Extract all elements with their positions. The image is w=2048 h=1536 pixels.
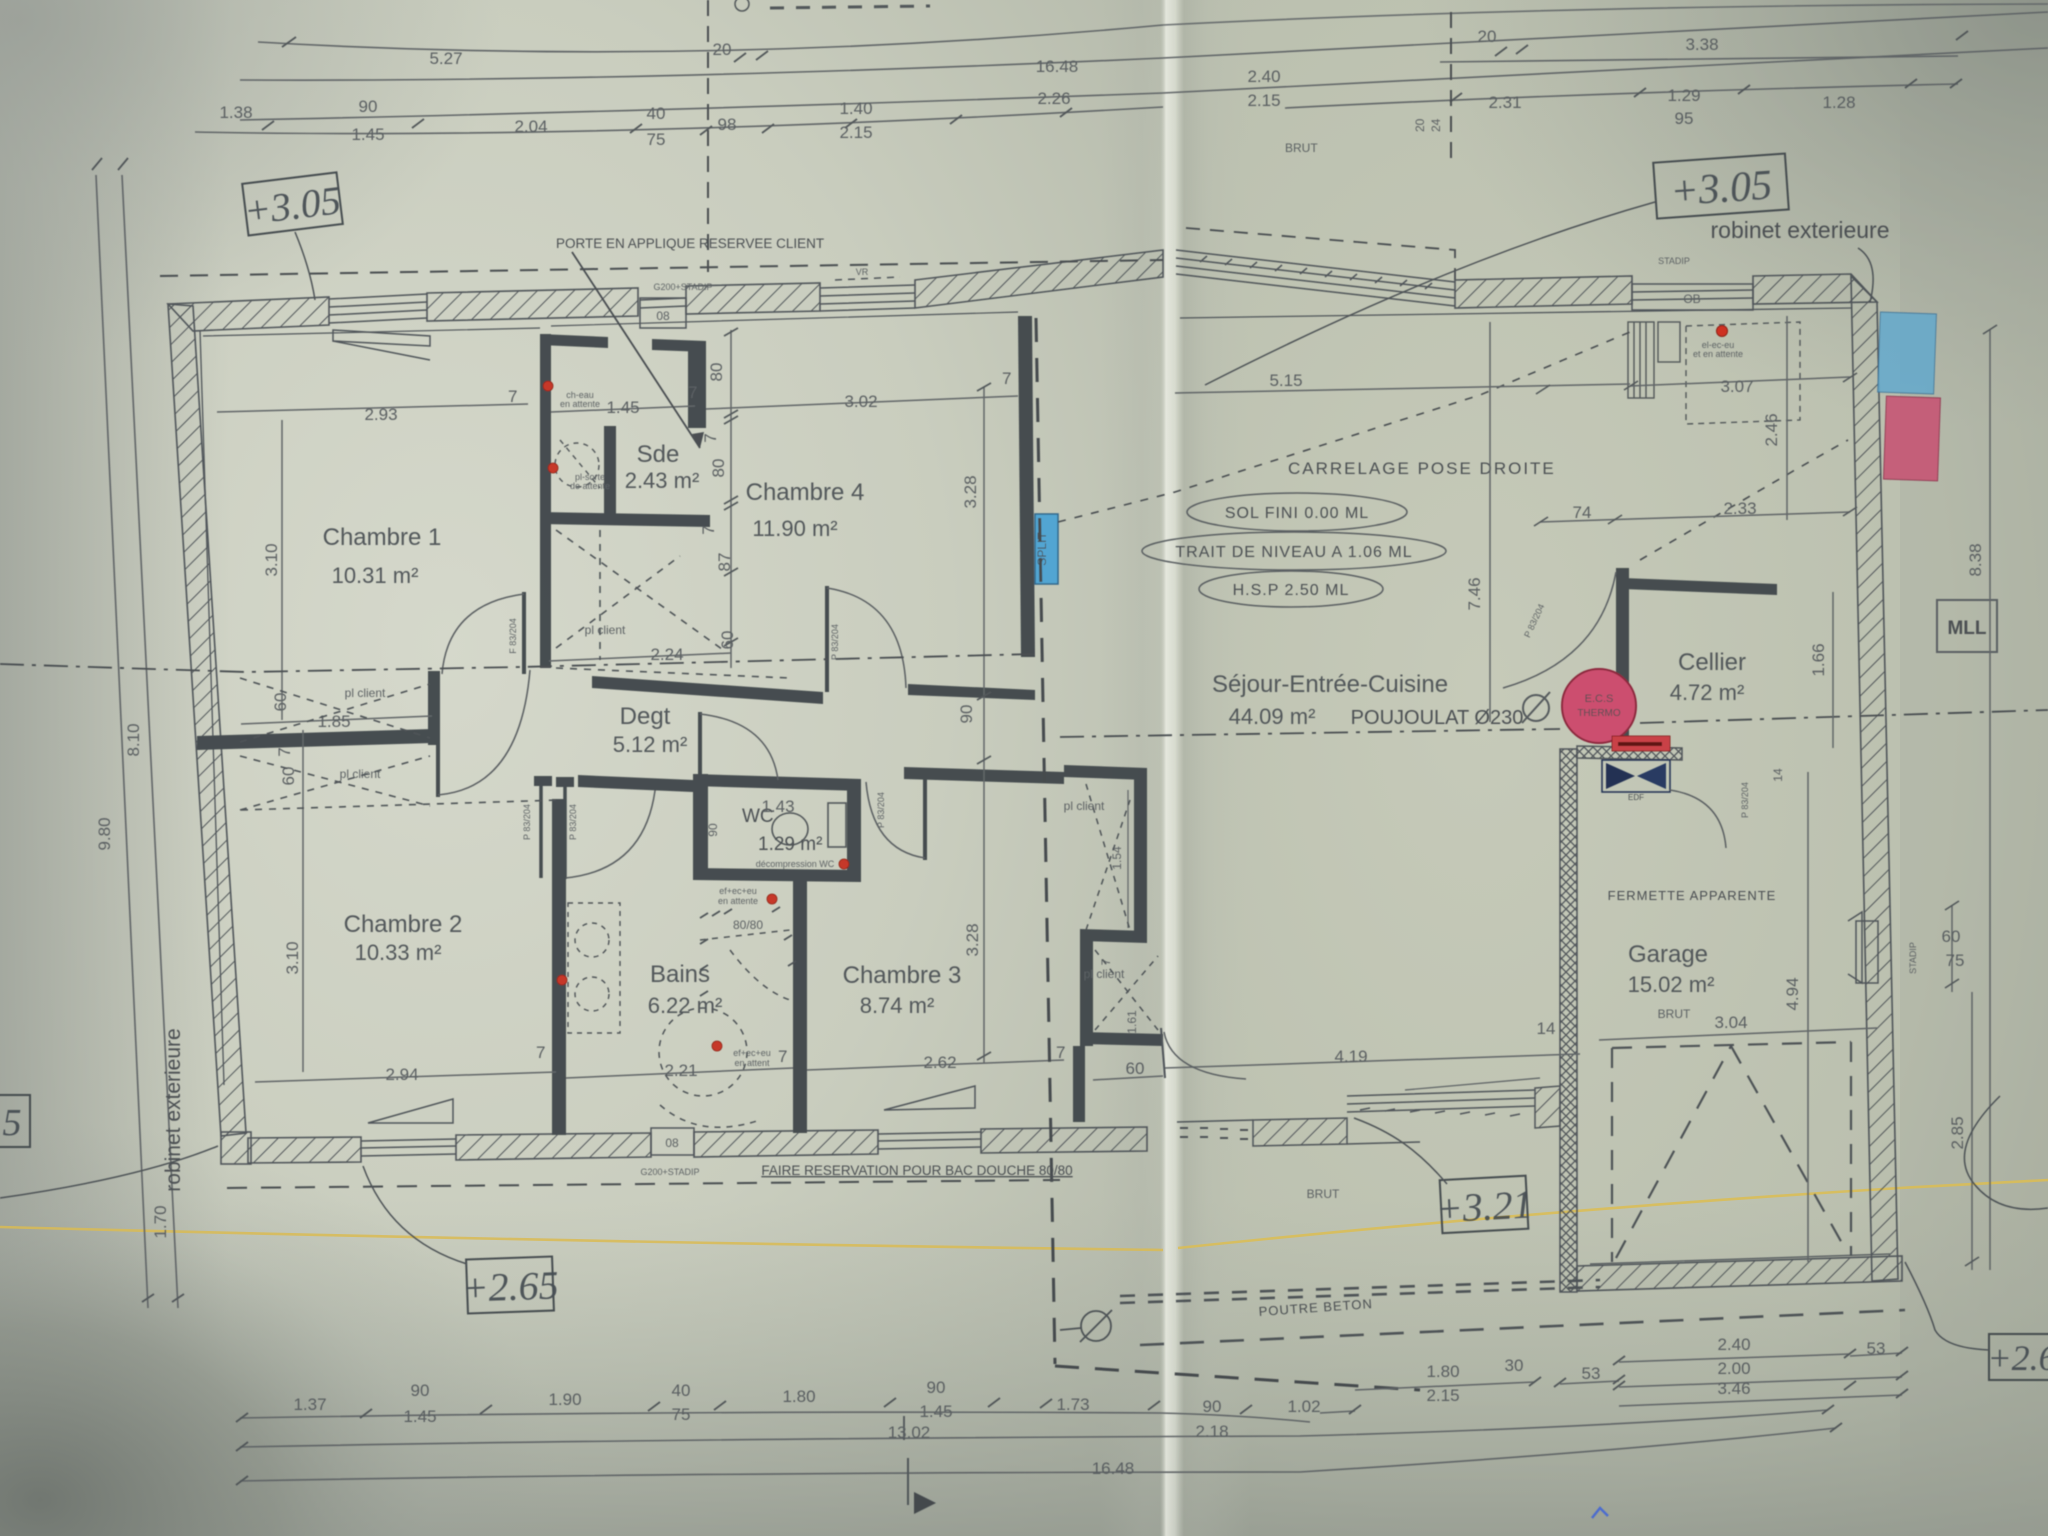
svg-text:Chambre 2: Chambre 2 — [344, 911, 463, 938]
svg-text:2.62: 2.62 — [923, 1053, 956, 1072]
svg-text:53: 53 — [1867, 1339, 1886, 1358]
svg-text:7: 7 — [508, 387, 517, 406]
svg-text:robinet exterieure: robinet exterieure — [162, 1028, 185, 1191]
svg-text:Cellier: Cellier — [1678, 649, 1746, 676]
svg-text:80/80: 80/80 — [733, 918, 763, 932]
svg-text:5.27: 5.27 — [429, 49, 462, 68]
svg-text:15.02 m²: 15.02 m² — [1628, 972, 1715, 997]
svg-text:90: 90 — [957, 705, 976, 724]
svg-text:4.19: 4.19 — [1334, 1047, 1367, 1066]
svg-text:75: 75 — [647, 130, 666, 149]
svg-text:60: 60 — [1126, 1059, 1145, 1078]
svg-text:16.48: 16.48 — [1036, 57, 1079, 76]
svg-text:60: 60 — [279, 767, 298, 786]
svg-text:1.45: 1.45 — [606, 398, 639, 417]
svg-text:P 83/204: P 83/204 — [522, 804, 532, 840]
svg-text:1.29 m²: 1.29 m² — [758, 834, 822, 855]
svg-text:80: 80 — [707, 363, 726, 382]
svg-text:3.28: 3.28 — [963, 923, 982, 956]
svg-text:2.31: 2.31 — [1488, 93, 1521, 112]
svg-text:2.33: 2.33 — [1723, 499, 1756, 518]
svg-text:8.10: 8.10 — [124, 723, 143, 756]
svg-text:60: 60 — [1942, 927, 1961, 946]
svg-text:P 83/204: P 83/204 — [568, 804, 578, 840]
svg-text:1.40: 1.40 — [839, 99, 872, 118]
svg-text:2.43 m²: 2.43 m² — [625, 468, 700, 493]
svg-text:2.46: 2.46 — [1762, 413, 1781, 446]
svg-text:pl client: pl client — [345, 686, 386, 700]
svg-text:2.40: 2.40 — [1247, 67, 1280, 86]
svg-text:2.15: 2.15 — [1426, 1386, 1459, 1405]
svg-text:7: 7 — [688, 383, 697, 402]
svg-text:2.24: 2.24 — [650, 645, 683, 664]
svg-text:98: 98 — [718, 115, 737, 134]
svg-text:1.73: 1.73 — [1056, 1395, 1089, 1414]
svg-text:pl client: pl client — [1064, 799, 1105, 813]
svg-text:87: 87 — [715, 553, 734, 572]
svg-text:9.80: 9.80 — [95, 817, 114, 850]
svg-text:53: 53 — [1582, 1364, 1601, 1383]
svg-text:2.93: 2.93 — [364, 405, 397, 424]
svg-text:EDF: EDF — [1628, 793, 1644, 802]
svg-text:7: 7 — [536, 1043, 545, 1062]
svg-text:2.15: 2.15 — [839, 123, 872, 142]
svg-text:24: 24 — [1429, 118, 1443, 132]
svg-text:+3.21: +3.21 — [1435, 1181, 1534, 1231]
svg-text:1.37: 1.37 — [293, 1395, 326, 1414]
svg-text:1.66: 1.66 — [1809, 643, 1828, 676]
svg-text:1.43: 1.43 — [761, 797, 794, 816]
svg-text:Garage: Garage — [1628, 941, 1708, 968]
svg-text:90: 90 — [359, 97, 378, 116]
svg-text:75: 75 — [672, 1405, 691, 1424]
svg-text:pl client: pl client — [585, 623, 626, 637]
svg-text:de attente: de attente — [570, 481, 610, 491]
svg-text:P 83/204: P 83/204 — [830, 624, 840, 660]
svg-text:FAIRE RESERVATION POUR BAC DOU: FAIRE RESERVATION POUR BAC DOUCHE 80/80 — [761, 1163, 1072, 1178]
svg-text:08: 08 — [656, 309, 670, 323]
svg-text:40: 40 — [672, 1381, 691, 1400]
svg-text:pl client: pl client — [1084, 967, 1125, 981]
svg-text:2.94: 2.94 — [385, 1065, 418, 1084]
svg-text:6.22 m²: 6.22 m² — [648, 993, 723, 1018]
svg-text:80: 80 — [709, 459, 728, 478]
svg-text:75: 75 — [1946, 951, 1965, 970]
svg-text:8.74 m²: 8.74 m² — [860, 993, 935, 1018]
svg-text:2.00: 2.00 — [1717, 1359, 1750, 1378]
svg-text:60: 60 — [718, 631, 737, 650]
svg-text:G200+STADIP: G200+STADIP — [640, 1167, 699, 1177]
svg-text:7: 7 — [699, 525, 718, 534]
svg-text:E.C.S: E.C.S — [1585, 693, 1614, 705]
svg-text:STADIP: STADIP — [1908, 942, 1918, 974]
svg-text:1.28: 1.28 — [1822, 93, 1855, 112]
svg-text:7: 7 — [778, 1047, 787, 1066]
svg-text:en attente: en attente — [718, 896, 758, 906]
svg-text:14: 14 — [1537, 1019, 1556, 1038]
svg-text:Séjour-Entrée-Cuisine: Séjour-Entrée-Cuisine — [1212, 671, 1448, 698]
svg-text:08: 08 — [665, 1136, 679, 1150]
svg-text:30: 30 — [1505, 1356, 1524, 1375]
svg-text:3.10: 3.10 — [262, 543, 281, 576]
svg-text:Chambre 3: Chambre 3 — [843, 962, 962, 989]
svg-text:3.10: 3.10 — [283, 941, 302, 974]
svg-text:14: 14 — [1771, 768, 1785, 782]
svg-text:5.12 m²: 5.12 m² — [613, 732, 688, 757]
svg-text:F 83/204: F 83/204 — [508, 618, 518, 654]
svg-text:POUJOULAT Ø230: POUJOULAT Ø230 — [1351, 707, 1524, 729]
svg-text:1.80: 1.80 — [1426, 1362, 1459, 1381]
svg-text:1.80: 1.80 — [782, 1387, 815, 1406]
svg-text:PORTE EN APPLIQUE RESERVEE CLI: PORTE EN APPLIQUE RESERVEE CLIENT — [556, 236, 824, 251]
svg-text:en attent: en attent — [734, 1058, 770, 1068]
svg-text:1.29: 1.29 — [1667, 86, 1700, 105]
svg-text:1.61: 1.61 — [1125, 1010, 1139, 1034]
svg-text:en attente: en attente — [560, 399, 600, 409]
svg-text:3.46: 3.46 — [1717, 1379, 1750, 1398]
svg-text:60: 60 — [271, 693, 290, 712]
svg-text:90: 90 — [411, 1381, 430, 1400]
svg-text:1.02: 1.02 — [1287, 1397, 1320, 1416]
svg-text:ef+ec+eu: ef+ec+eu — [733, 1048, 771, 1058]
svg-text:4.94: 4.94 — [1783, 977, 1802, 1010]
svg-text:SOL FINI 0.00 ML: SOL FINI 0.00 ML — [1225, 505, 1369, 522]
svg-text:5.15: 5.15 — [1269, 371, 1302, 390]
svg-text:STADIP: STADIP — [1658, 256, 1690, 266]
svg-text:11.90 m²: 11.90 m² — [752, 516, 837, 541]
svg-text:+3.05: +3.05 — [1669, 163, 1774, 216]
svg-text:74: 74 — [1573, 503, 1592, 522]
svg-text:3.28: 3.28 — [961, 475, 980, 508]
svg-text:13.02: 13.02 — [888, 1423, 931, 1442]
svg-text:Bains: Bains — [650, 961, 710, 988]
svg-text:20: 20 — [713, 40, 732, 59]
svg-text:4.72 m²: 4.72 m² — [1670, 680, 1745, 705]
svg-text:95: 95 — [1675, 109, 1694, 128]
svg-text:2.04: 2.04 — [514, 117, 547, 136]
svg-text:1.70: 1.70 — [151, 1205, 170, 1238]
svg-text:5: 5 — [3, 1102, 22, 1144]
svg-text:Chambre 1: Chambre 1 — [323, 524, 442, 551]
svg-text:10.31 m²: 10.31 m² — [332, 563, 419, 588]
svg-text:OB: OB — [1683, 292, 1700, 306]
svg-text:1.90: 1.90 — [548, 1390, 581, 1409]
svg-text:1.45: 1.45 — [351, 125, 384, 144]
svg-text:pl client: pl client — [340, 767, 381, 781]
svg-text:90: 90 — [1203, 1397, 1222, 1416]
svg-text:décompression WC: décompression WC — [756, 859, 835, 869]
svg-text:40: 40 — [647, 104, 666, 123]
svg-text:et en attente: et en attente — [1693, 349, 1743, 359]
svg-text:BRUT: BRUT — [1307, 1187, 1340, 1201]
svg-text:7.46: 7.46 — [1465, 577, 1484, 610]
svg-text:2.85: 2.85 — [1948, 1116, 1967, 1149]
svg-text:3.04: 3.04 — [1714, 1013, 1747, 1032]
svg-text:44.09 m²: 44.09 m² — [1229, 704, 1316, 729]
svg-text:7: 7 — [1056, 1043, 1065, 1062]
svg-text:P 83/204: P 83/204 — [876, 792, 886, 828]
svg-text:CARRELAGE POSE DROITE: CARRELAGE POSE DROITE — [1288, 459, 1556, 478]
svg-text:1.54: 1.54 — [1110, 846, 1124, 870]
svg-text:P 83/204: P 83/204 — [1740, 782, 1750, 818]
svg-text:Degt: Degt — [620, 703, 671, 730]
svg-text:16.48: 16.48 — [1092, 1459, 1135, 1478]
svg-text:20: 20 — [1413, 118, 1427, 132]
svg-text:BRUT: BRUT — [1285, 141, 1318, 155]
svg-text:1.45: 1.45 — [403, 1407, 436, 1426]
svg-text:10.33 m²: 10.33 m² — [355, 940, 442, 965]
svg-text:20: 20 — [1478, 27, 1497, 46]
svg-text:2.40: 2.40 — [1717, 1335, 1750, 1354]
svg-text:2.21: 2.21 — [664, 1061, 697, 1080]
svg-text:Chambre 4: Chambre 4 — [746, 479, 865, 506]
svg-text:Sde: Sde — [637, 441, 680, 468]
svg-text:VR: VR — [856, 267, 869, 277]
svg-text:7: 7 — [1099, 958, 1113, 965]
svg-text:THERMO: THERMO — [1577, 708, 1621, 719]
svg-text:2.26: 2.26 — [1037, 89, 1070, 108]
svg-text:BRUT: BRUT — [1658, 1007, 1691, 1021]
svg-text:2.18: 2.18 — [1195, 1422, 1228, 1441]
svg-text:H.S.P 2.50 ML: H.S.P 2.50 ML — [1233, 582, 1350, 599]
svg-text:+2.6: +2.6 — [1987, 1338, 2048, 1378]
svg-text:FERMETTE APPARENTE: FERMETTE APPARENTE — [1608, 888, 1777, 903]
svg-text:TRAIT DE NIVEAU A 1.06 ML: TRAIT DE NIVEAU A 1.06 ML — [1175, 544, 1412, 561]
svg-text:3.02: 3.02 — [844, 392, 877, 411]
svg-text:ef+ec+eu: ef+ec+eu — [719, 886, 757, 896]
svg-text:3.07: 3.07 — [1720, 377, 1753, 396]
svg-text:MLL: MLL — [1947, 618, 1986, 639]
svg-text:90: 90 — [706, 823, 720, 837]
svg-text:G200+STADIP: G200+STADIP — [653, 282, 712, 292]
svg-text:robinet exterieure: robinet exterieure — [1711, 217, 1890, 243]
svg-text:7: 7 — [1002, 369, 1011, 388]
svg-text:SPLIT: SPLIT — [1035, 532, 1049, 566]
svg-text:7: 7 — [701, 433, 720, 442]
svg-text:90: 90 — [927, 1378, 946, 1397]
svg-text:1.85: 1.85 — [317, 712, 350, 731]
svg-text:+2.65: +2.65 — [461, 1262, 560, 1310]
svg-text:8.38: 8.38 — [1966, 543, 1985, 576]
svg-text:3.38: 3.38 — [1685, 35, 1718, 54]
svg-text:7: 7 — [275, 747, 294, 756]
svg-text:1.38: 1.38 — [219, 103, 252, 122]
svg-text:2.15: 2.15 — [1247, 91, 1280, 110]
svg-text:1.45: 1.45 — [919, 1402, 952, 1421]
